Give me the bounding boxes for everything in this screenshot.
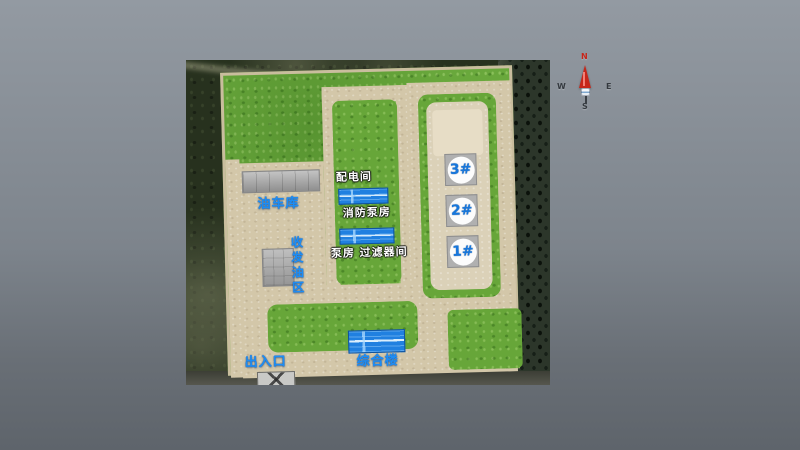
label-oil-dispatch: 收发油区 xyxy=(290,236,304,296)
entrance-gate xyxy=(257,371,295,385)
tank-marker-2[interactable]: 2# xyxy=(445,194,478,227)
compass-east-label: E xyxy=(606,82,611,91)
compass-west-label: W xyxy=(557,82,566,91)
compass-gizmo[interactable]: N W E S xyxy=(554,52,616,116)
site-plot[interactable]: 3# 2# 1# 配电间 消防泵房 泵房 过滤器间 油车库 收发油区 综合楼 出… xyxy=(220,65,520,376)
label-garage: 油车库 xyxy=(257,197,299,211)
complex-building xyxy=(348,329,406,353)
tank-marker-3[interactable]: 3# xyxy=(444,153,477,186)
tank-badge: 1# xyxy=(449,238,477,266)
label-entrance: 出入口 xyxy=(245,355,287,369)
island-southeast xyxy=(447,308,523,370)
label-fire-pump: 消防泵房 xyxy=(343,206,391,218)
compass-north-arrow-icon xyxy=(579,65,591,88)
tank-pad xyxy=(432,109,483,156)
label-complex-building: 综合楼 xyxy=(357,354,399,368)
compass-north-label: N xyxy=(581,52,588,61)
pump-filter-building xyxy=(339,227,394,244)
scene-viewport[interactable]: 3# 2# 1# 配电间 消防泵房 泵房 过滤器间 油车库 收发油区 综合楼 出… xyxy=(186,60,550,385)
power-distribution-building xyxy=(338,188,388,205)
tank-label: 3# xyxy=(450,161,472,178)
tank-label: 2# xyxy=(451,202,473,219)
garage-building xyxy=(242,169,321,193)
compass-needle xyxy=(585,96,587,104)
tank-label: 1# xyxy=(452,243,474,260)
tank-marker-1[interactable]: 1# xyxy=(446,235,479,268)
label-pump-filter: 泵房 过滤器间 xyxy=(331,246,408,259)
tank-badge: 3# xyxy=(447,156,475,184)
label-power-distribution: 配电间 xyxy=(336,171,372,183)
compass-arrow-highlight xyxy=(583,72,585,86)
tank-badge: 2# xyxy=(448,197,476,225)
compass-base xyxy=(581,88,590,96)
